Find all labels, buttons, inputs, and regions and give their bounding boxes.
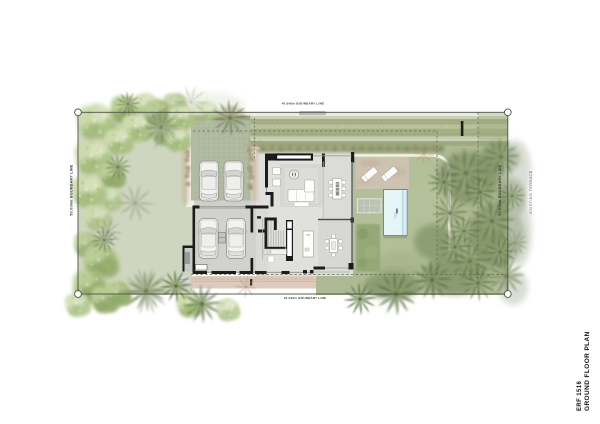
svg-text:GROUND FLOOR PLAN: GROUND FLOOR PLAN — [584, 331, 591, 411]
svg-text:40.000m BOUNDARY LINE: 40.000m BOUNDARY LINE — [282, 102, 324, 106]
svg-text:50.000m BOUNDARY LINE: 50.000m BOUNDARY LINE — [498, 164, 502, 216]
svg-text:POOL: POOL — [395, 211, 398, 218]
svg-text:EXISTING TERRACE: EXISTING TERRACE — [529, 170, 533, 213]
svg-text:50.000m BOUNDARY LINE: 50.000m BOUNDARY LINE — [70, 164, 74, 216]
svg-text:ERF 1516: ERF 1516 — [577, 381, 583, 411]
svg-text:40.000m BOUNDARY LINE: 40.000m BOUNDARY LINE — [284, 296, 326, 300]
